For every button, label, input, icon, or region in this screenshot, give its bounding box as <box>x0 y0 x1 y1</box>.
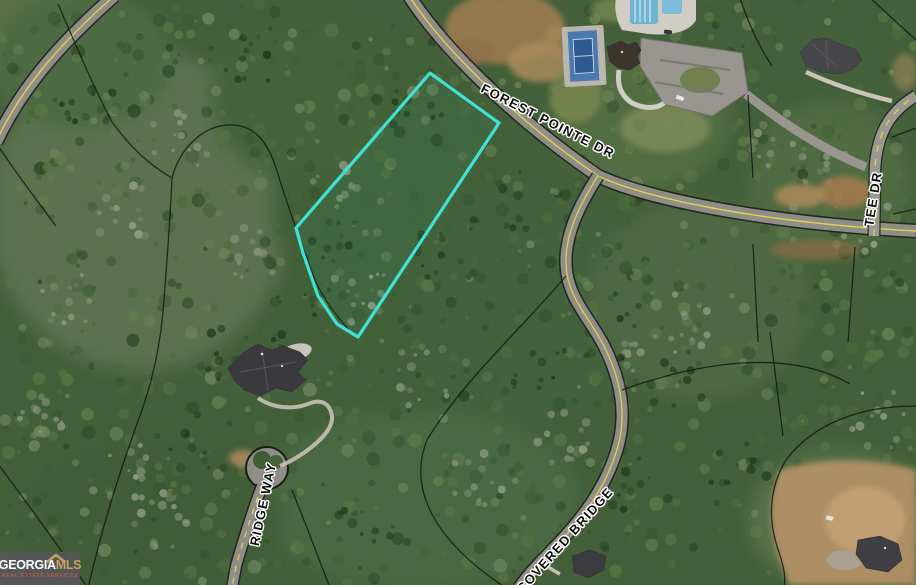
swimming-pool <box>630 0 658 24</box>
satellite-imagery <box>0 0 916 585</box>
aerial-map[interactable]: FOREST POINTE DR TEE DR COVERED BRIDGE R… <box>0 0 916 585</box>
tennis-court <box>568 30 600 81</box>
roof-icon <box>46 554 66 563</box>
brand-tagline: REAL ESTATE SERVICES <box>2 573 78 579</box>
brand-name: GEORGIAMLS <box>0 559 81 572</box>
brand-watermark: GEORGIAMLS REAL ESTATE SERVICES <box>0 552 80 585</box>
